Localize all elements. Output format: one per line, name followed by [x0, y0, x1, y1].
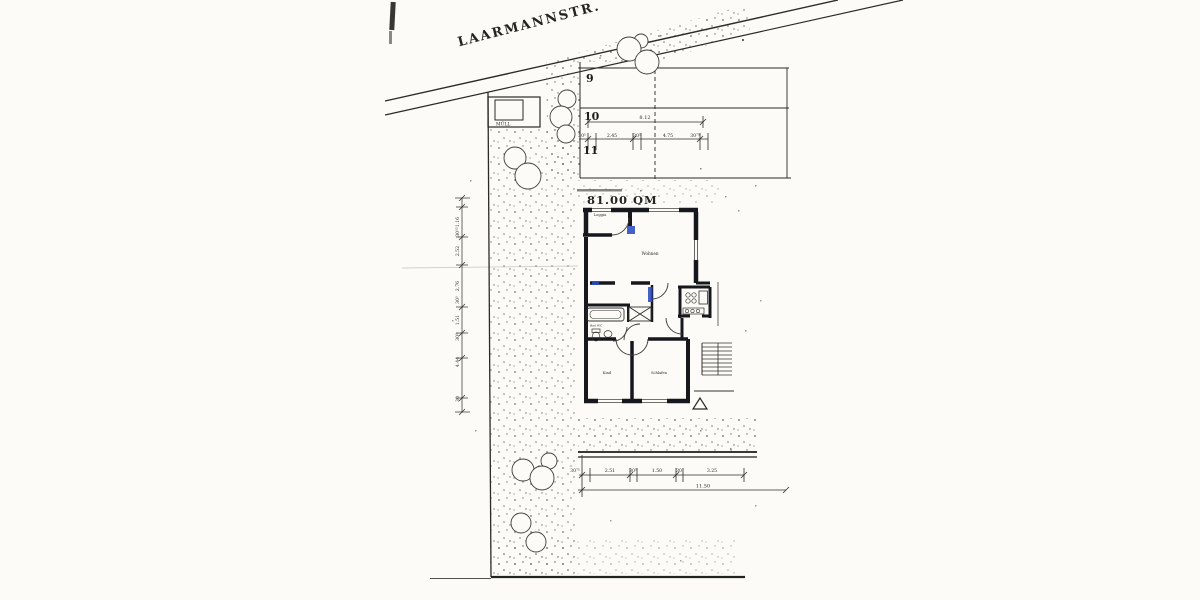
- bush: [515, 163, 541, 189]
- scan-smudge: [577, 189, 622, 192]
- dim-bottom-seg-0: 30⁷⁵: [570, 468, 580, 474]
- dim-left-seg-3: 2.76: [455, 281, 461, 291]
- site-plan-drawing: LAARMANNSTR. MÜLL 9 10 11: [0, 0, 1200, 600]
- dim-bottom-seg-3: 1.50: [652, 468, 662, 474]
- stipple-below-building: [578, 418, 756, 452]
- dim-left-seg-8: 30: [455, 396, 461, 402]
- dim-top-seg-2: 30⁵: [633, 133, 641, 139]
- bush: [530, 466, 554, 490]
- room-label-kind: Kind: [603, 371, 612, 375]
- dim-bottom-total: 11.50: [696, 484, 710, 490]
- dim-top-total: 8.12: [639, 115, 650, 121]
- dim-top-seg-4: 30⁷⁵: [690, 133, 700, 139]
- bush: [511, 513, 531, 533]
- room-label-bad: Bad WC: [590, 324, 603, 328]
- dim-left-seg-1: 30¹⁵: [455, 227, 461, 237]
- plot-10-label: 10: [584, 110, 600, 123]
- dim-left-seg-7: 4.44: [455, 357, 461, 367]
- blue-marker-wall: [592, 281, 599, 285]
- dim-top-seg-3: 4.75: [663, 133, 673, 139]
- dim-left-seg-0: 1.16: [455, 217, 461, 227]
- blue-marker-hall: [648, 287, 653, 302]
- dim-left-seg-6: 30⁵: [455, 333, 461, 341]
- dim-top-seg-0: 30⁵: [578, 133, 586, 139]
- dim-top-seg-1: 2.45: [607, 133, 617, 139]
- scanned-site-plan-page: LAARMANNSTR. MÜLL 9 10 11: [0, 0, 1200, 600]
- room-label-loggia: Loggia: [594, 213, 607, 217]
- dim-bottom-seg-1: 2.51: [605, 468, 615, 474]
- room-label-wohnen: Wohnen: [641, 251, 658, 256]
- muell-label: MÜLL: [496, 121, 510, 128]
- building-floor-plan: Loggia Wohnen Bad WC Kind Schlafen: [581, 205, 734, 409]
- dim-bottom-seg-4: 30: [676, 468, 682, 474]
- area-label: 81.00 QM: [587, 193, 658, 207]
- room-label-schlafen: Schlafen: [651, 371, 668, 375]
- dim-left-seg-4: 30⁵: [455, 296, 461, 304]
- stipple-left-band: [490, 128, 576, 575]
- bush: [558, 90, 576, 108]
- dim-left-seg-5: 1.51: [455, 315, 461, 325]
- dim-bottom-seg-5: 3.25: [707, 468, 717, 474]
- bush: [550, 106, 572, 128]
- dim-left-seg-2: 2.52: [455, 246, 461, 256]
- bush: [557, 125, 575, 143]
- dim-bottom-seg-2: 30⁵: [629, 468, 637, 474]
- plot-9-label: 9: [586, 72, 594, 85]
- blue-marker-loggia-door: [627, 226, 635, 234]
- bush: [526, 532, 546, 552]
- bush: [635, 50, 659, 74]
